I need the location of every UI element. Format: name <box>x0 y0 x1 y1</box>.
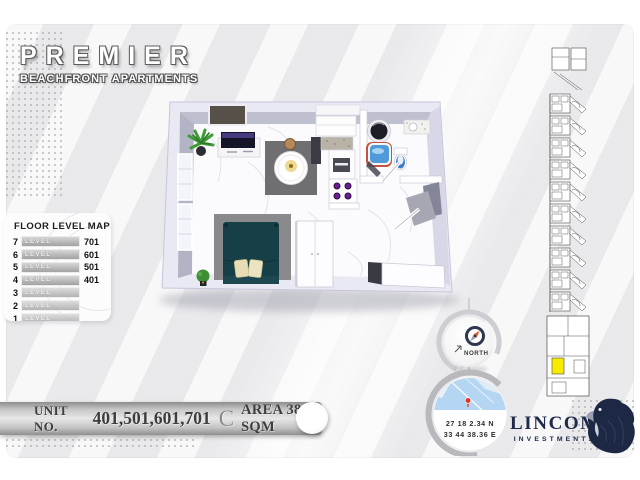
building-key-plan <box>544 44 602 402</box>
level-bar: LEVEL <box>21 300 80 311</box>
level-bar-label: LEVEL <box>22 264 51 270</box>
location-badge: 27 18 2.34 N 33 44 38.36 E <box>433 377 507 451</box>
north-label: NORTH <box>464 350 489 357</box>
picture-frame <box>209 105 246 125</box>
window <box>178 204 192 250</box>
wardrobe <box>295 221 333 287</box>
stove <box>329 179 357 203</box>
shoe-cabinet <box>368 262 445 288</box>
floor-level-map-title: FLOOR LEVEL MAP <box>14 221 111 232</box>
longitude-text: 33 44 38.36 E <box>444 430 497 439</box>
key-plan-bottom-section <box>547 316 589 396</box>
level-bar-label: LEVEL <box>22 277 51 283</box>
level-bar-label: LEVEL <box>22 303 51 309</box>
level-unit-number: 601 <box>84 250 104 260</box>
key-plan-highlight-unit <box>552 358 564 374</box>
unit-type-letter: C <box>219 406 234 432</box>
level-row: 4 LEVEL 401 <box>10 274 111 286</box>
level-floor-number: 2 <box>10 301 18 311</box>
level-floor-number: 7 <box>10 237 18 247</box>
level-row: 7 LEVEL 701 <box>10 236 111 248</box>
level-row: 6 LEVEL 601 <box>10 249 111 261</box>
bathroom-wall <box>360 110 367 178</box>
level-bar-label: LEVEL <box>22 290 51 296</box>
level-unit-number: 401 <box>84 275 104 285</box>
level-floor-number: 3 <box>10 288 18 298</box>
logo: PREMIER BEACHFRONT APARTMENTS <box>20 42 198 85</box>
level-floor-number: 6 <box>10 250 18 260</box>
tall-cabinet <box>311 137 321 164</box>
logo-subtitle: BEACHFRONT APARTMENTS <box>20 73 198 85</box>
banner-end-circle <box>296 402 328 434</box>
level-bar-label: LEVEL <box>22 316 51 321</box>
floor-level-map: FLOOR LEVEL MAP 7 LEVEL 701 6 LEVEL 601 … <box>3 213 111 321</box>
level-bar: LEVEL <box>21 262 80 273</box>
bathroom-wall <box>400 176 442 183</box>
compass-icon <box>467 328 484 345</box>
page: PREMIER BEACHFRONT APARTMENTS FLOOR LEVE… <box>0 0 640 480</box>
granite-counter <box>321 137 353 150</box>
level-floor-number: 4 <box>10 275 18 285</box>
unit-numbers: 401,501,601,701 <box>93 408 211 429</box>
level-unit-number: 501 <box>84 262 104 272</box>
latitude-text: 27 18 2.34 N <box>446 419 494 428</box>
level-bar-label: LEVEL <box>22 252 51 258</box>
key-plan-top-section <box>552 48 586 90</box>
halftone-dots-bottom-left <box>4 437 194 450</box>
level-bar: LEVEL <box>21 287 80 298</box>
dining-area <box>265 139 317 196</box>
compass-location-group: NORTH 27 18 2.34 N 33 44 38.36 E <box>424 298 518 456</box>
tv-console <box>218 132 260 157</box>
vanity-sink <box>404 120 430 134</box>
level-row: 3 LEVEL <box>10 287 111 299</box>
level-unit-number: 701 <box>84 237 104 247</box>
pillow <box>248 259 263 277</box>
logo-title: PREMIER <box>20 42 198 71</box>
unit-banner: UNIT NO. 401,501,601,701 C AREA 38 SQM <box>0 402 322 435</box>
level-bar: LEVEL <box>21 275 80 286</box>
unit-no-label: UNIT NO. <box>34 403 85 435</box>
level-bar: LEVEL <box>21 236 80 247</box>
floor-level-rows: 7 LEVEL 701 6 LEVEL 601 5 LEVEL 501 4 LE… <box>10 236 111 321</box>
eagle-icon <box>584 395 638 457</box>
window <box>178 154 192 200</box>
pillow <box>234 259 249 277</box>
level-floor-number: 1 <box>10 314 18 321</box>
bathroom-wall <box>360 176 383 183</box>
north-compass: NORTH <box>444 317 494 367</box>
stool <box>285 139 296 150</box>
level-bar-label: LEVEL <box>22 239 51 245</box>
level-row: 2 LEVEL <box>10 300 111 312</box>
level-row: 5 LEVEL 501 <box>10 262 111 274</box>
wall-cabinet <box>316 105 360 115</box>
level-bar: LEVEL <box>21 313 80 321</box>
level-row: 1 LEVEL <box>10 313 111 321</box>
level-floor-number: 5 <box>10 262 18 272</box>
fridge <box>316 116 356 136</box>
level-bar: LEVEL <box>21 249 80 260</box>
